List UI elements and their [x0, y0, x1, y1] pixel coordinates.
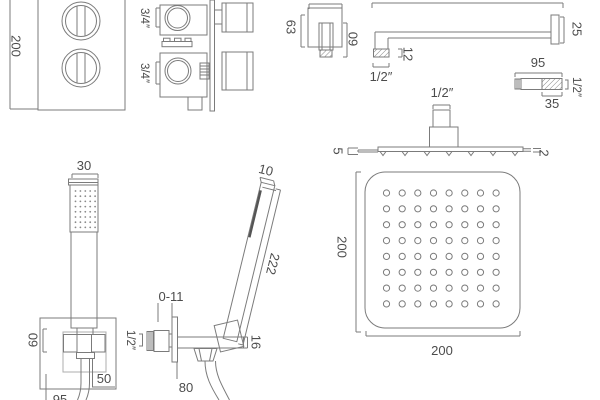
- wall-outlet-drawing: 63 60: [283, 4, 360, 57]
- nozzle-hole: [383, 253, 389, 259]
- nozzle-hole: [477, 190, 483, 196]
- nozzle-hole: [477, 253, 483, 259]
- nozzle-hole: [399, 190, 405, 196]
- nozzle-hole: [383, 222, 389, 228]
- spray-dot: [89, 227, 91, 229]
- handset-spray-dots: [75, 190, 96, 228]
- nozzle-hole: [477, 222, 483, 228]
- spray-dot: [75, 201, 77, 203]
- union-thread: [542, 79, 562, 90]
- nozzle-hole: [462, 190, 468, 196]
- nozzle-hole: [399, 222, 405, 228]
- nozzle-hole: [477, 269, 483, 275]
- spray-dot: [94, 190, 96, 192]
- outlet-plate: [308, 8, 342, 47]
- handset-cradle: [214, 320, 244, 352]
- nozzle-hole: [446, 190, 452, 196]
- nozzle-hole: [399, 285, 405, 291]
- dim-line-union-size: [565, 80, 568, 89]
- spray-dot: [80, 201, 82, 203]
- dim-bracket-offset: 50: [97, 371, 111, 386]
- valve-handle-bottom: [222, 52, 253, 90]
- nozzle-hole: [430, 190, 436, 196]
- spray-dot: [89, 195, 91, 197]
- nozzle-hole: [462, 301, 468, 307]
- spray-dot: [89, 211, 91, 213]
- nozzle-hole: [462, 206, 468, 212]
- wall-union-drawing: 95 35 1/2″: [515, 55, 582, 111]
- spray-dot: [75, 216, 77, 218]
- dim-face-height: 200: [334, 236, 349, 258]
- handset-front-view: 30: [69, 158, 99, 328]
- shower-spec-diagram: 200 3/4″ 3/4″: [0, 0, 600, 400]
- spray-dot: [75, 227, 77, 229]
- nozzle-hole: [415, 190, 421, 196]
- dim-union-thread-length: 35: [545, 96, 559, 111]
- dim-cradle: 16: [248, 335, 263, 349]
- nozzle-hole: [462, 253, 468, 259]
- nozzle-hole: [430, 285, 436, 291]
- spray-dot: [94, 211, 96, 213]
- spray-dot: [75, 190, 77, 192]
- head-side-nozzles: [380, 152, 518, 156]
- spray-dot: [89, 190, 91, 192]
- nozzle-hole: [430, 222, 436, 228]
- dim-line-3-4-bottom: [156, 62, 160, 84]
- spray-dot: [84, 221, 86, 223]
- spray-dot: [75, 195, 77, 197]
- nozzle-hole: [383, 206, 389, 212]
- nozzle-hole: [477, 206, 483, 212]
- spray-dot: [84, 190, 86, 192]
- nozzle-hole: [430, 238, 436, 244]
- dim-line-25: [560, 17, 564, 43]
- valve-front-view: 200: [8, 0, 125, 110]
- dim-line-0-11: [158, 303, 172, 322]
- valve-outlet-stub: [188, 97, 202, 110]
- nozzle-hole: [446, 253, 452, 259]
- head-plate-profile: [378, 147, 523, 152]
- nozzle-tick: [446, 152, 452, 156]
- valve-unions: [162, 38, 192, 47]
- spray-dot: [80, 211, 82, 213]
- nozzle-tick: [424, 152, 430, 156]
- nozzle-hole: [399, 301, 405, 307]
- dim-bracket-drop: 95: [53, 392, 67, 400]
- cartridge-spline: [200, 63, 209, 79]
- spray-dot: [80, 190, 82, 192]
- nozzle-hole: [477, 301, 483, 307]
- dim-line-head-thread: [433, 105, 450, 109]
- nozzle-hole: [383, 301, 389, 307]
- spray-dot: [94, 195, 96, 197]
- spray-dot: [84, 216, 86, 218]
- nozzle-hole: [383, 238, 389, 244]
- nozzle-hole: [415, 301, 421, 307]
- nozzle-hole: [477, 285, 483, 291]
- nozzle-hole: [493, 269, 499, 275]
- head-face-view: 200 200: [334, 172, 520, 358]
- nozzle-hole: [446, 238, 452, 244]
- spray-dot: [94, 201, 96, 203]
- hose-side: [205, 361, 230, 400]
- nozzle-hole: [493, 301, 499, 307]
- bracket-collar-top: [77, 328, 93, 335]
- dim-line-95: [515, 73, 562, 77]
- head-stem-base: [430, 127, 459, 147]
- nozzle-hole: [415, 206, 421, 212]
- spray-dot: [94, 216, 96, 218]
- nozzle-hole: [477, 238, 483, 244]
- dim-port-top: 3/4″: [138, 8, 150, 28]
- nozzle-hole: [493, 253, 499, 259]
- nozzle-hole: [462, 238, 468, 244]
- spray-dot: [94, 206, 96, 208]
- nozzle-hole: [446, 206, 452, 212]
- spray-dot: [89, 201, 91, 203]
- nozzle-hole: [399, 238, 405, 244]
- nozzle-tick: [490, 152, 496, 156]
- bracket-front-view: 60 50 95: [26, 318, 116, 400]
- nozzle-hole: [415, 269, 421, 275]
- dim-port-bottom: 3/4″: [138, 63, 150, 83]
- spray-dot: [89, 221, 91, 223]
- spray-dot: [84, 195, 86, 197]
- wall-knob-body: [154, 331, 169, 352]
- head-side-view: 1/2″ 5 2: [330, 85, 551, 157]
- nozzle-hole: [446, 285, 452, 291]
- dim-union-length: 95: [531, 55, 545, 70]
- handset-spray-stripe: [249, 190, 260, 237]
- dim-handset-tip: 10: [257, 161, 275, 179]
- nozzle-hole: [399, 206, 405, 212]
- spray-dot: [84, 211, 86, 213]
- dim-line-arm-thread: [373, 63, 389, 67]
- nozzle-hole: [415, 285, 421, 291]
- valve-handle-top: [222, 3, 253, 32]
- dim-bracket-depth: 80: [179, 380, 193, 395]
- valve-side-view: 3/4″ 3/4″: [138, 0, 253, 111]
- dim-line-30: [72, 174, 98, 178]
- nozzle-hole: [430, 301, 436, 307]
- nozzle-hole: [446, 222, 452, 228]
- dim-line-face-height: [356, 172, 361, 332]
- dim-valve-height: 200: [8, 35, 23, 57]
- spray-dot: [84, 206, 86, 208]
- outlet-nozzle: [319, 23, 333, 50]
- nozzle-hole: [430, 206, 436, 212]
- bracket-side-view: 0-11 1/2″ 80 16 10 222: [124, 161, 283, 400]
- hose-nut: [194, 349, 217, 362]
- nozzle-hole: [399, 269, 405, 275]
- spray-dot: [80, 195, 82, 197]
- spray-dot: [89, 206, 91, 208]
- nozzle-hole: [493, 206, 499, 212]
- dim-handset-length: 222: [263, 252, 283, 277]
- spray-dot: [75, 211, 77, 213]
- valve-knob-top: [62, 2, 100, 40]
- spray-dot: [84, 201, 86, 203]
- dim-bracket-adjust: 0-11: [158, 289, 183, 304]
- spray-dot: [75, 221, 77, 223]
- dim-bracket-thread: 1/2″: [124, 330, 136, 350]
- handset-handle: [71, 232, 97, 328]
- dim-line-3-4-top: [156, 8, 160, 27]
- dim-line-10: [260, 177, 275, 185]
- union-body: [521, 79, 542, 90]
- head-face-holes: [383, 190, 499, 307]
- dim-line-face-width: [366, 331, 520, 336]
- spray-dot: [80, 221, 82, 223]
- nozzle-hole: [430, 269, 436, 275]
- nozzle-hole: [383, 269, 389, 275]
- nozzle-hole: [415, 253, 421, 259]
- dim-arm-thread: 1/2″: [370, 69, 393, 84]
- dim-plate-edge: 5: [330, 147, 345, 154]
- spray-dot: [84, 227, 86, 229]
- hose-front: [78, 359, 90, 400]
- nozzle-hole: [383, 190, 389, 196]
- nozzle-tick: [402, 152, 408, 156]
- nozzle-hole: [446, 301, 452, 307]
- spray-dot: [89, 216, 91, 218]
- spray-dot: [80, 206, 82, 208]
- nozzle-hole: [430, 253, 436, 259]
- nozzle-hole: [462, 285, 468, 291]
- dim-face-width: 200: [431, 343, 453, 358]
- dim-line-63: [301, 15, 305, 47]
- spray-dot: [94, 227, 96, 229]
- dim-line-half-inch-side: [139, 334, 143, 346]
- arm-body: [374, 32, 552, 49]
- nozzle-hole: [462, 269, 468, 275]
- nozzle-hole: [446, 269, 452, 275]
- spray-dot: [75, 206, 77, 208]
- nozzle-hole: [493, 285, 499, 291]
- spray-dot: [80, 227, 82, 229]
- shower-arm-drawing: 25 12 1/2″: [370, 3, 585, 84]
- nozzle-hole: [493, 238, 499, 244]
- dim-bracket-height: 60: [26, 333, 41, 347]
- nozzle-tick: [380, 152, 386, 156]
- dim-arm-flange: 25: [569, 22, 584, 36]
- valve-plate: [38, 0, 125, 110]
- nozzle-hole: [415, 238, 421, 244]
- arm-wall-flange: [551, 15, 559, 44]
- valve-wall-plate: [210, 0, 215, 111]
- dim-outlet-depth: 60: [346, 32, 361, 46]
- dim-line-60-front: [43, 329, 47, 352]
- nozzle-hole: [383, 285, 389, 291]
- spray-dot: [80, 216, 82, 218]
- technical-drawing-page: 200 3/4″ 3/4″: [0, 0, 600, 400]
- bracket-side-plate: [172, 317, 178, 362]
- nozzle-hole: [493, 190, 499, 196]
- nozzle-tick: [512, 152, 518, 156]
- dim-line-arm-length: [372, 3, 563, 8]
- dim-line-5: [348, 148, 358, 155]
- head-stem-top: [433, 110, 450, 127]
- nozzle-tick: [468, 152, 474, 156]
- nozzle-hole: [399, 253, 405, 259]
- outlet-thread: [320, 50, 332, 57]
- handset-spray-face: [70, 185, 98, 232]
- bracket-arm: [178, 337, 244, 348]
- dim-arm-tip: 12: [400, 47, 415, 61]
- valve-knob-bottom: [62, 49, 100, 87]
- nozzle-hole: [493, 222, 499, 228]
- spray-dot: [94, 221, 96, 223]
- nozzle-hole: [462, 222, 468, 228]
- dim-handset-width: 30: [77, 158, 91, 173]
- dim-head-thread: 1/2″: [431, 85, 454, 100]
- dim-nozzle: 2: [536, 149, 551, 156]
- dim-union-size: 1/2″: [570, 77, 582, 97]
- arm-thread-tip: [374, 49, 390, 57]
- bracket-collar-bottom: [77, 353, 95, 359]
- nozzle-hole: [415, 222, 421, 228]
- dim-outlet-width: 63: [283, 20, 298, 34]
